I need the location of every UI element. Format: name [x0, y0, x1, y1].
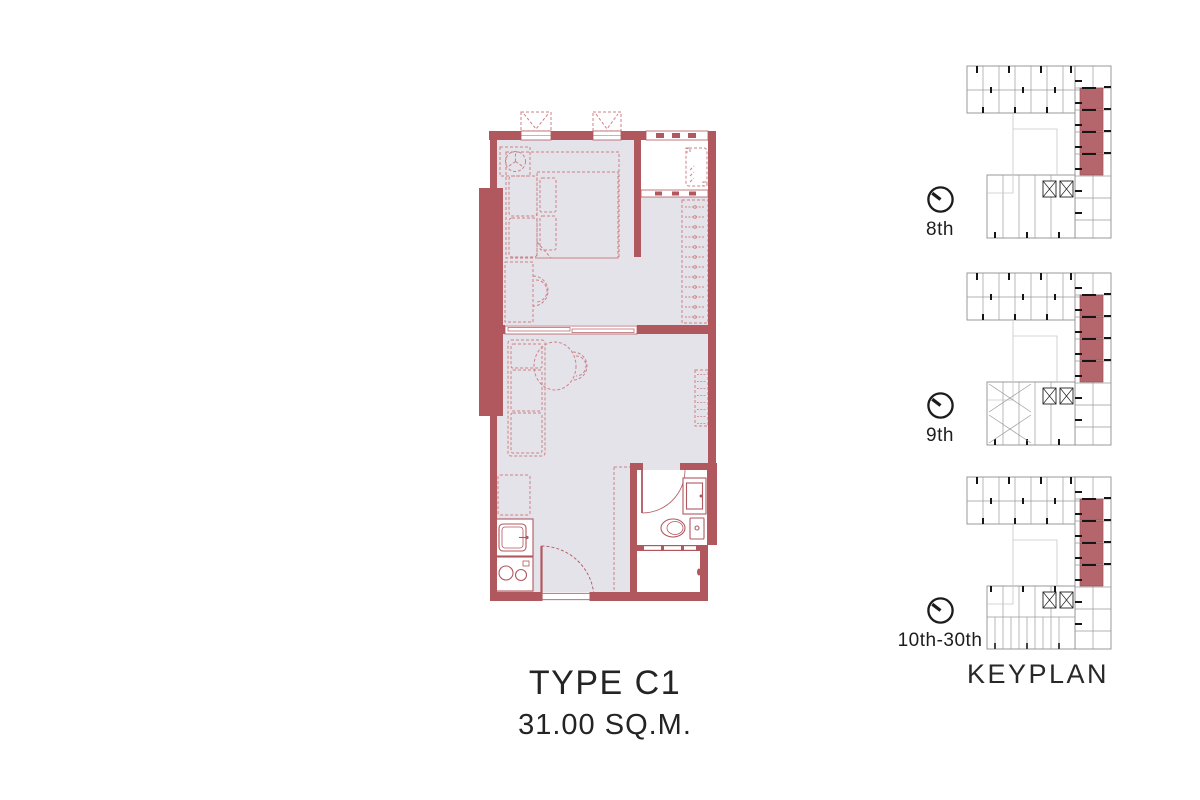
floor-marker-10th-30th: 10th-30th: [894, 595, 986, 652]
north-indicator-icon: [925, 184, 956, 215]
north-indicator-icon: [925, 390, 956, 421]
ac-ledge-floor: [637, 551, 700, 592]
balcony-floor: [641, 140, 708, 190]
north-indicator-icon: [925, 595, 956, 626]
unit-area-label: 31.00 SQ.M.: [455, 709, 755, 742]
unit-title-block: TYPE C1 31.00 SQ.M.: [455, 666, 755, 742]
shoe-shelf: [695, 370, 708, 426]
floor-label: 10th-30th: [898, 630, 983, 652]
floor-marker-9th: 9th: [894, 390, 986, 447]
wardrobe: [682, 200, 708, 323]
louver-partition: [637, 545, 700, 551]
floor-label: 8th: [926, 219, 954, 241]
keyplan-caption: KEYPLAN: [963, 659, 1113, 690]
floor-label: 9th: [926, 425, 954, 447]
awning-window-icon: [521, 112, 621, 131]
stove: [494, 557, 533, 591]
unit-type-title: TYPE C1: [455, 666, 755, 702]
kitchen-sink: [494, 519, 533, 556]
structural-column: [479, 188, 503, 416]
floor-marker-8th: 8th: [894, 184, 986, 241]
vanity-sink: [683, 478, 706, 514]
floor-plan: [465, 100, 725, 615]
